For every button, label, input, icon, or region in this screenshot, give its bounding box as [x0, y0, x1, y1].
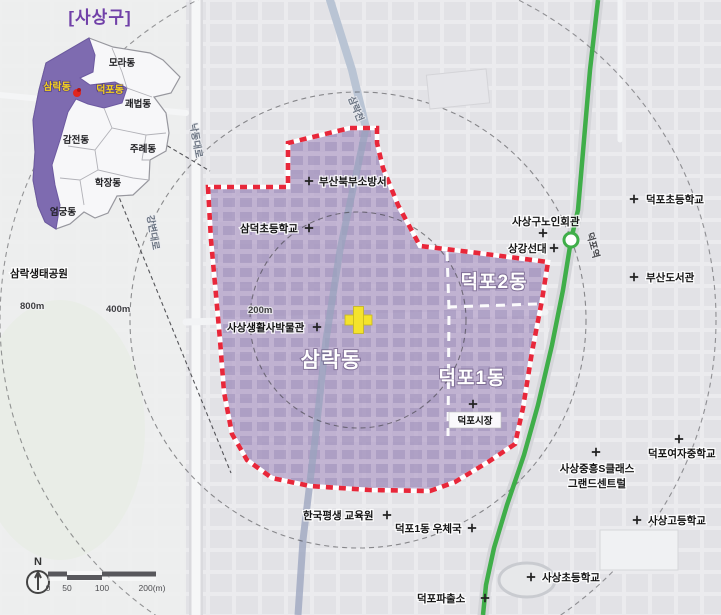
poi-senior-center: 사상구노인회관: [512, 215, 580, 228]
north-label: N: [34, 556, 42, 568]
poi-busan-library: 부산도서관: [646, 271, 695, 284]
poi-deokpo-girls-middle: 덕포여자중학교: [648, 447, 716, 460]
inset-title: [사상구]: [68, 8, 131, 27]
inset-deokpo: 덕포동: [96, 83, 124, 96]
scale-100: 100: [95, 583, 109, 593]
map-figure: 부산북부소방서 삼덕초등학교 사상구노인회관 상강선대 덕포초등학교 부산도서관…: [0, 0, 721, 615]
poi-sasang-elementary: 사상초등학교: [542, 571, 600, 584]
poi-jungheung-line1: 사상중흥S클래스: [560, 462, 635, 475]
apartment-block: [600, 530, 678, 570]
inset-eomgung: 엄궁동: [50, 206, 76, 218]
poi-police-box: 덕포파출소: [417, 592, 466, 605]
poi-sanggangseondae: 상강선대: [508, 242, 547, 255]
scale-0: 0: [46, 583, 51, 593]
inset-gwaebeop: 괘법동: [125, 98, 151, 110]
poi-fire-station: 부산북부소방서: [319, 175, 387, 188]
scalebar-seg3: [102, 572, 156, 577]
poi-eco-park: 삼락생태공원: [10, 267, 68, 280]
poi-deokpo-market: 덕포시장: [458, 415, 493, 427]
ring-label-400m: 400m: [106, 304, 130, 315]
poi-deokpo-elementary: 덕포초등학교: [646, 193, 704, 206]
inset-gamjeon: 감전동: [63, 134, 89, 146]
deokpo-market-label: 덕포시장: [449, 412, 501, 428]
ring-label-800m: 800m: [20, 301, 44, 312]
poi-jungheung-line2: 그랜드센트럴: [568, 477, 626, 490]
inset-site-marker-core: [77, 88, 81, 92]
inset-samnak: 삼락동: [43, 80, 71, 93]
poi-samdeok-elementary: 삼덕초등학교: [240, 222, 298, 235]
inset-hakjang: 학장동: [95, 177, 121, 189]
inset-mora: 모라동: [109, 57, 135, 69]
poi-lifelong-edu: 한국평생 교육원: [303, 509, 374, 522]
inset-jurye: 주례동: [130, 143, 156, 155]
area-deokpo2dong: 덕포2동: [460, 271, 527, 293]
scale-50: 50: [62, 583, 72, 593]
poi-post-office: 덕포1동 우체국: [395, 522, 462, 535]
poi-history-museum: 사상생활사박물관: [227, 321, 305, 334]
ring-label-200m: 200m: [248, 305, 272, 316]
building-block: [426, 69, 489, 109]
area-samnakdong: 삼락동: [301, 349, 362, 372]
scalebar-seg2: [67, 575, 102, 580]
poi-sasang-high: 사상고등학교: [648, 514, 706, 527]
scale-200m: 200(m): [139, 583, 166, 593]
area-deokpo1dong: 덕포1동: [438, 367, 505, 389]
map-canvas: 부산북부소방서 삼덕초등학교 사상구노인회관 상강선대 덕포초등학교 부산도서관…: [0, 0, 721, 615]
scalebar-seg1: [48, 572, 67, 577]
deokpo-station-icon: [564, 233, 578, 247]
